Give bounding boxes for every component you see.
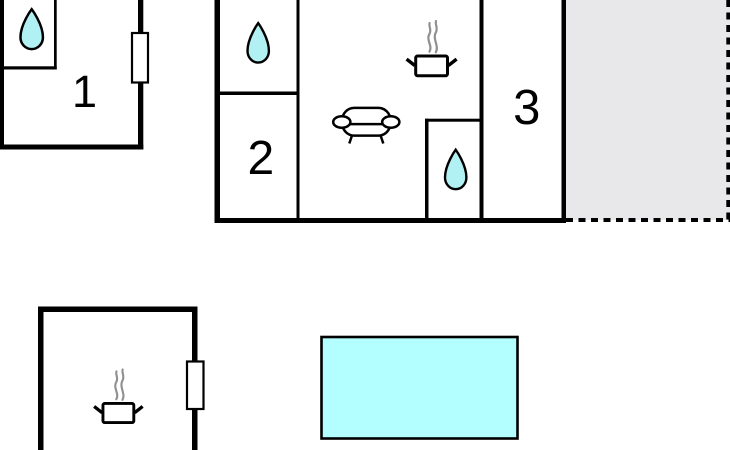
svg-text:2: 2 [247,132,274,185]
svg-text:3: 3 [513,81,540,135]
svg-text:1: 1 [72,66,97,117]
